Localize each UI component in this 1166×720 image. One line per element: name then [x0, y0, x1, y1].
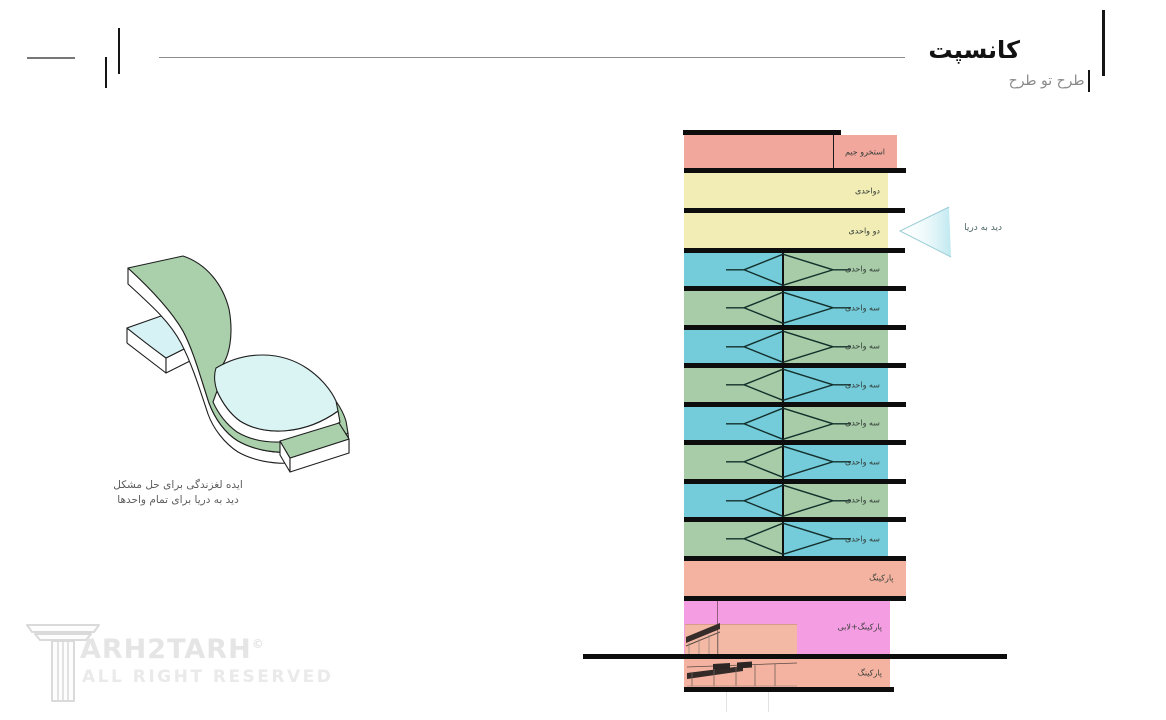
floor-three: سه واحدی	[684, 522, 888, 556]
floor-label: دو واحدی	[849, 226, 880, 235]
floor-label: سه واحدی	[845, 303, 880, 312]
floor-label: استخرو جیم	[833, 147, 897, 156]
floor-two: دواحدی	[684, 173, 888, 208]
ghost-line-2	[768, 692, 769, 712]
building-section: استخرو جیمدواحدیدو واحدی سه واحدی سه واح…	[0, 0, 1166, 720]
sea-view-label: دید به دریا	[952, 223, 1002, 233]
ghost-line-1	[726, 692, 727, 712]
floor-two: دو واحدی	[684, 213, 888, 248]
floor-label: سه واحدی	[845, 380, 880, 389]
floor-three: سه واحدی	[684, 484, 888, 518]
floor-label: سه واحدی	[845, 534, 880, 543]
floor-lobby: پارکینگ+لابی	[684, 601, 890, 654]
floor-label: دواحدی	[855, 186, 880, 195]
floor-basement: پارکینگ	[684, 659, 890, 688]
floor-label: پارکینگ	[858, 668, 882, 677]
floor-pool: استخرو جیم	[684, 135, 897, 168]
copyright-symbol: ©	[252, 637, 265, 651]
watermark-brand: ARH2TARH©	[80, 634, 265, 665]
floor-label: سه واحدی	[845, 496, 880, 505]
concept-board: کانسپت طرح تو طرح ایده لغزندگی برای حل م…	[0, 0, 1166, 720]
floor-label: پارکینگ	[869, 574, 893, 583]
floor-three: سه واحدی	[684, 253, 888, 287]
basement-ramp	[685, 660, 820, 687]
floor-parking: پارکینگ	[684, 561, 906, 597]
ground-line	[583, 654, 1007, 659]
floor-label: پارکینگ+لابی	[838, 623, 882, 632]
floor-three: سه واحدی	[684, 368, 888, 402]
floor-label: سه واحدی	[845, 457, 880, 466]
floor-label: سه واحدی	[845, 265, 880, 274]
watermark-brand-text: ARH2TARH	[80, 634, 252, 665]
floor-label: سه واحدی	[845, 342, 880, 351]
floor-three: سه واحدی	[684, 445, 888, 479]
watermark-rights: ALL RIGHT RESERVED	[82, 667, 333, 687]
floor-slab	[684, 687, 894, 692]
floor-label: سه واحدی	[845, 419, 880, 428]
floor-three: سه واحدی	[684, 330, 888, 364]
floor-three: سه واحدی	[684, 407, 888, 441]
floor-three: سه واحدی	[684, 291, 888, 325]
lobby-ramp	[684, 613, 724, 654]
